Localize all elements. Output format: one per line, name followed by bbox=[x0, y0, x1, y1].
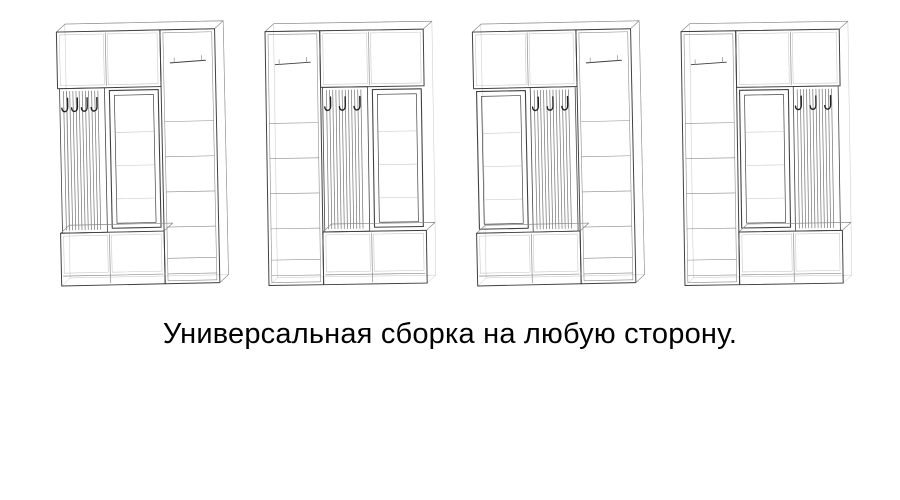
assembly-variant-2 bbox=[253, 5, 439, 298]
wardrobe-diagram-2 bbox=[253, 5, 439, 298]
wardrobe-diagram-3 bbox=[461, 5, 647, 298]
wardrobe-diagram-4 bbox=[669, 5, 855, 298]
caption: Универсальная сборка на любую сторону. bbox=[0, 318, 900, 351]
page: Универсальная сборка на любую сторону. bbox=[0, 0, 900, 500]
assembly-variant-1 bbox=[45, 5, 231, 298]
figures-row bbox=[0, 0, 900, 298]
assembly-variant-4 bbox=[669, 5, 855, 298]
wardrobe-diagram-1 bbox=[45, 5, 231, 298]
assembly-variant-3 bbox=[461, 5, 647, 298]
